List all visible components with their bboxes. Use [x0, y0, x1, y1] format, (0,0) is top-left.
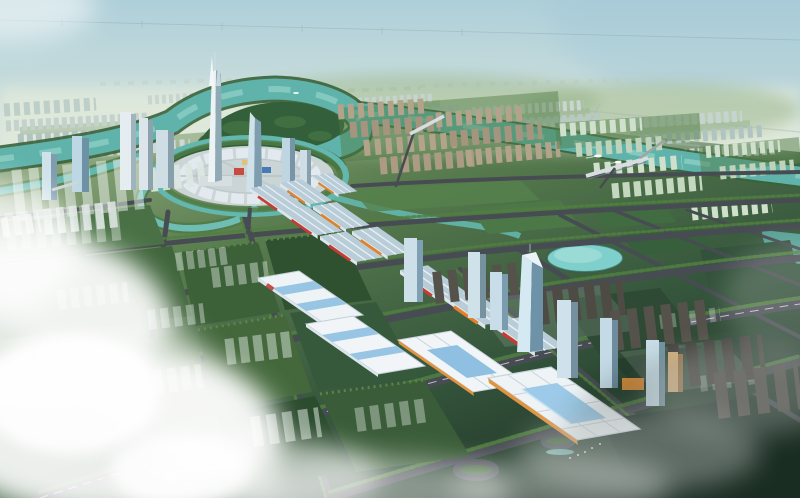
boat: [615, 161, 621, 163]
boat: [594, 155, 602, 158]
aerial-city-rendering: [0, 0, 800, 498]
tan-residential-district: [338, 106, 560, 166]
office-tower: [557, 300, 578, 378]
residential-row: [576, 143, 662, 150]
glass-tower: [42, 152, 57, 200]
pond: [547, 244, 623, 272]
office-tower: [404, 238, 423, 302]
boat: [293, 92, 299, 94]
render-canvas: [0, 0, 800, 498]
plaza-access-road: [248, 208, 250, 234]
plaza-pavilion: [262, 167, 271, 173]
residential-row: [380, 158, 474, 166]
glass-tower: [156, 130, 174, 188]
plaza-pavilion: [234, 168, 244, 175]
residential-row: [450, 131, 542, 139]
residential-row: [436, 113, 524, 120]
office-tower: [468, 252, 486, 318]
residential-row: [338, 106, 424, 112]
office-tower: [490, 272, 508, 330]
office-tower: [600, 318, 618, 388]
